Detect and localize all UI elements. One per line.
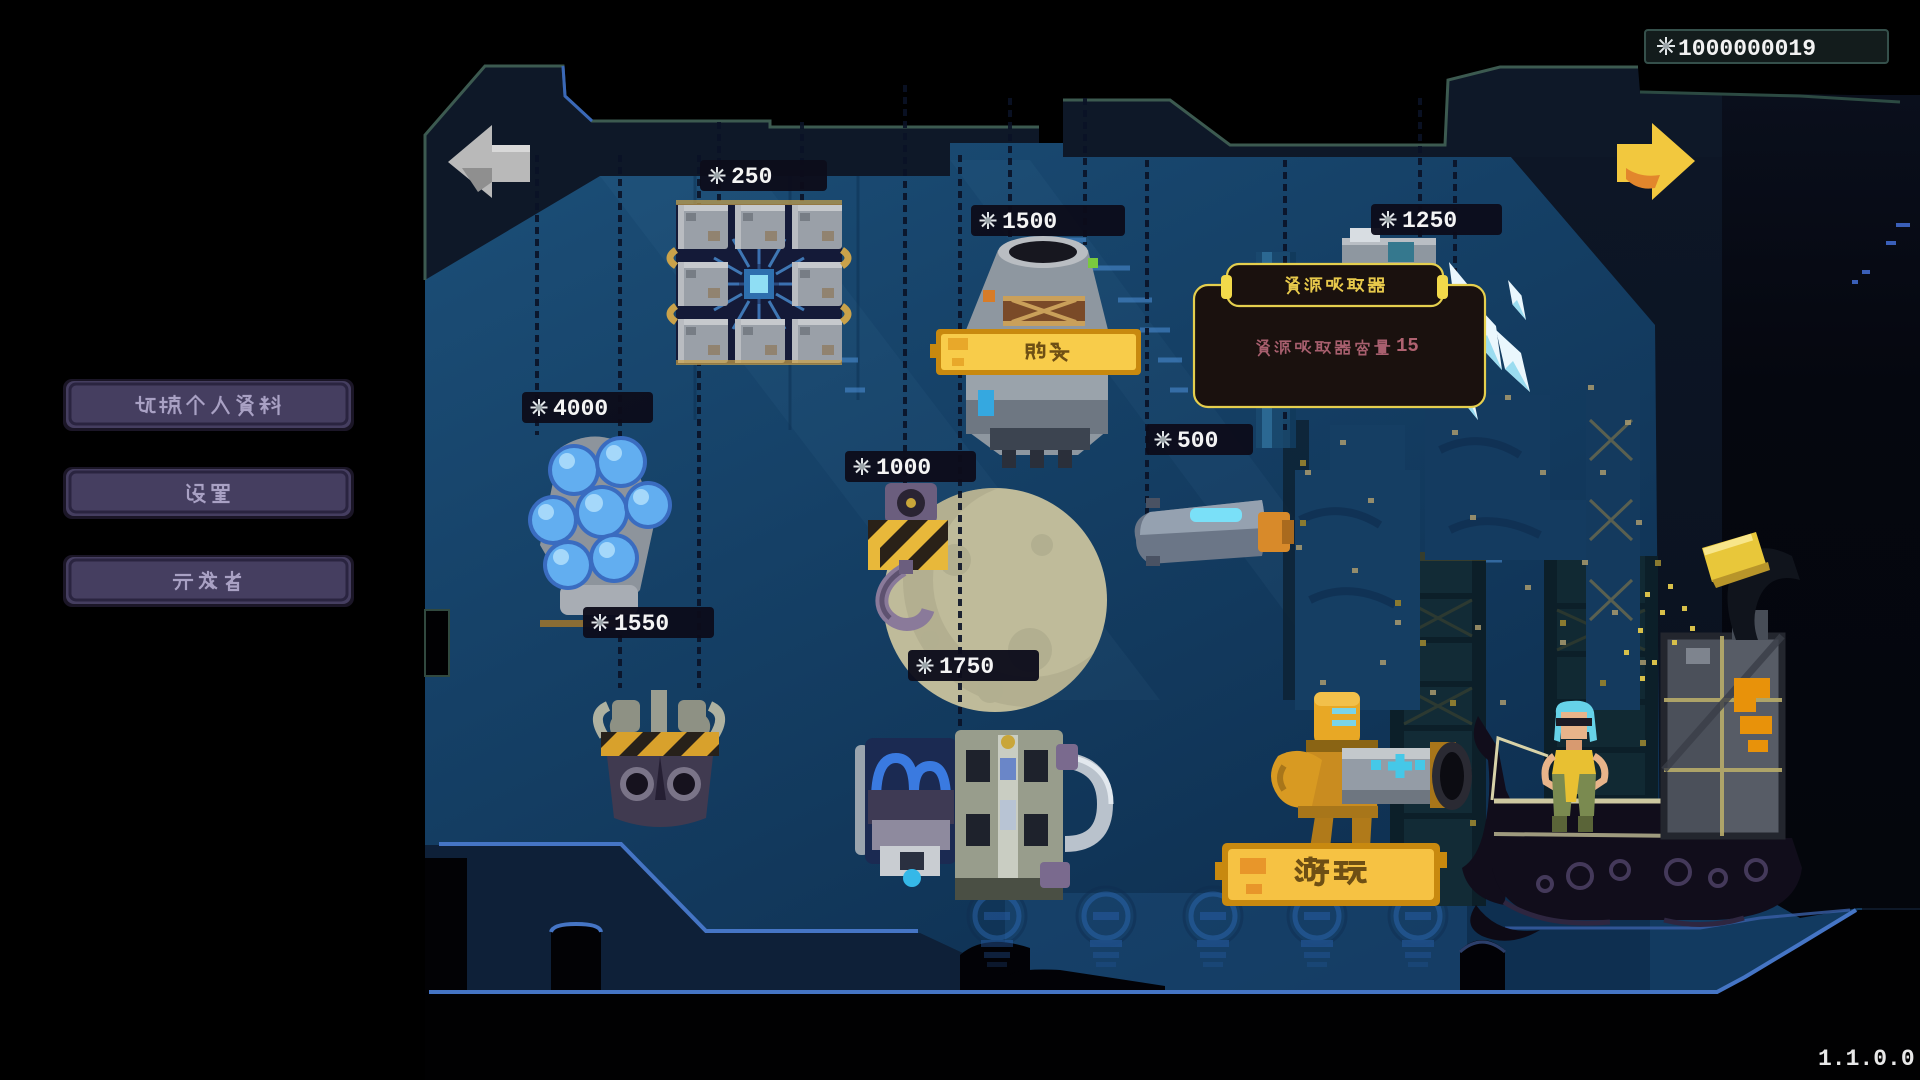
svg-text:4000: 4000 (553, 396, 608, 422)
svg-text:1500: 1500 (1002, 209, 1057, 235)
svg-text:1550: 1550 (614, 611, 669, 637)
svg-text:1250: 1250 (1402, 208, 1457, 234)
svg-text:500: 500 (1177, 428, 1218, 454)
svg-text:1000: 1000 (876, 455, 931, 481)
svg-text:15: 15 (1396, 335, 1419, 357)
svg-text:1.1.0.0: 1.1.0.0 (1818, 1046, 1915, 1072)
svg-text:250: 250 (731, 164, 772, 190)
svg-text:1000000019: 1000000019 (1678, 36, 1816, 62)
svg-text:1750: 1750 (939, 654, 994, 680)
